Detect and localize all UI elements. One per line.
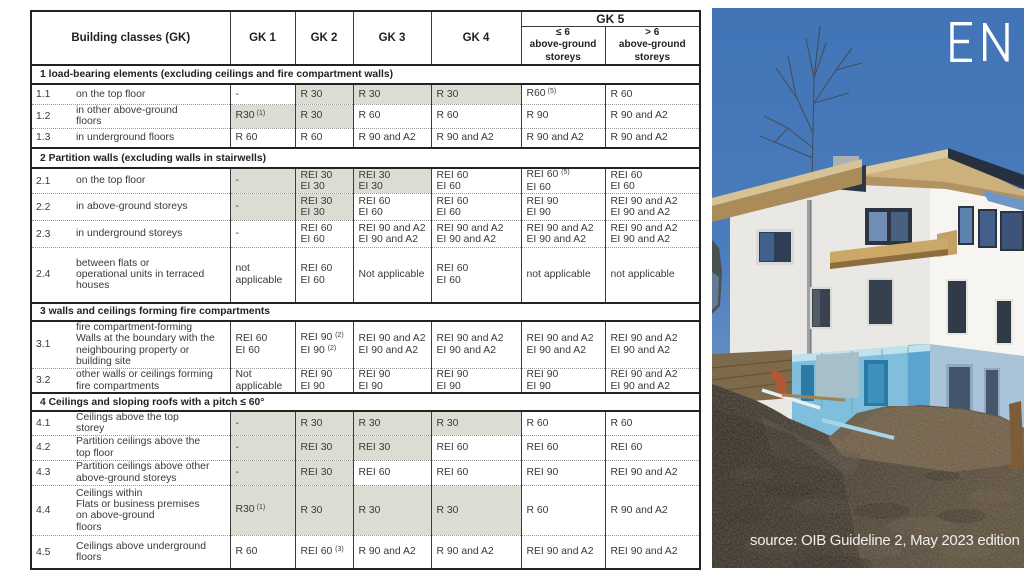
svg-text:source: OIB Guideline 2, May 2: source: OIB Guideline 2, May 2023 editio… (750, 532, 1020, 549)
